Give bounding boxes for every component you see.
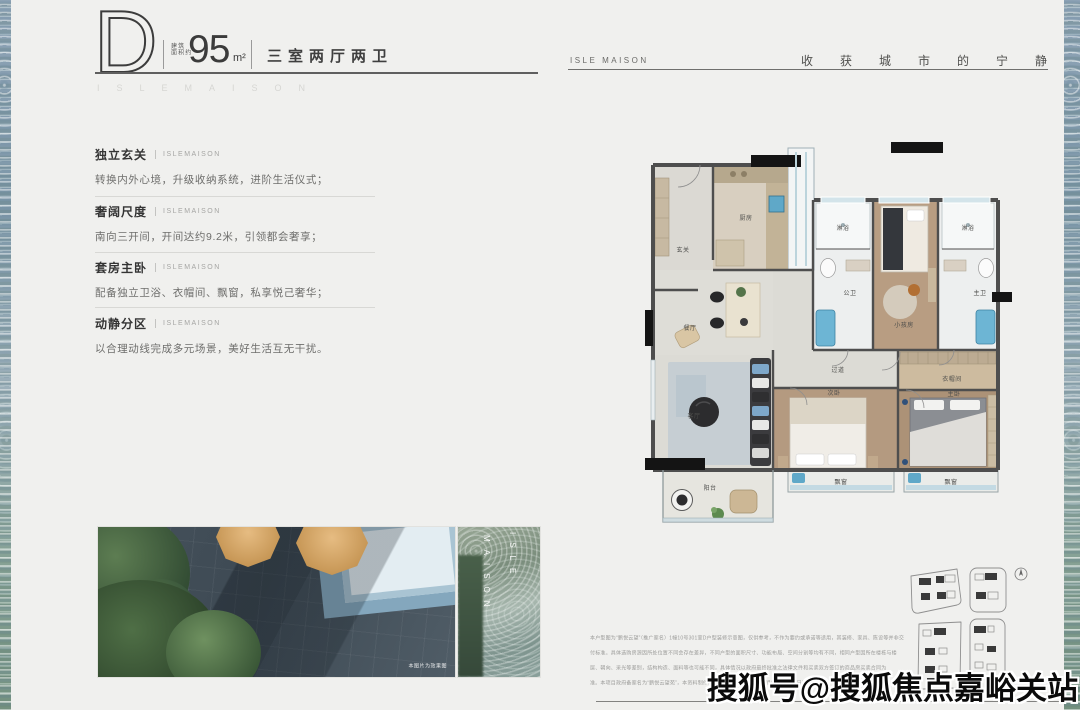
left-texture-strip (0, 0, 11, 710)
feature-title: 奢阔尺度 (95, 203, 147, 220)
floorplan-poster-page: D 建筑 面积约 95 m² 三室两厅两卫 ISLEMAISON 独立玄关 IS… (0, 0, 1080, 710)
feature-divider (95, 196, 375, 197)
room-label: 淋浴 (961, 224, 974, 232)
watermark-text: 搜狐号@搜狐焦点嘉峪关站 (707, 663, 1078, 708)
room-label: 阳台 (703, 484, 716, 492)
feature-desc: 转换内外心境，升级收纳系统，进阶生活仪式； (95, 172, 395, 187)
feature-title: 动静分区 (95, 315, 147, 332)
header-rule (95, 72, 538, 74)
room-label: 主卧 (947, 390, 960, 398)
compass-icon (1015, 568, 1027, 580)
layout-label: 三室两厅两卫 (267, 45, 393, 66)
room-label: 次卧 (827, 389, 840, 397)
room-label: 公卫 (843, 290, 856, 297)
feature-master-suite: 套房主卧 ISLEMAISON 配备独立卫浴、衣帽间、飘窗，私享悦己奢华； (95, 259, 395, 300)
feature-desc: 以合理动线完成多元场景，美好生活互无干扰。 (95, 341, 395, 356)
unit-letter-d: D (92, 2, 164, 82)
room-label: 主卫 (973, 289, 986, 297)
room-label: 过道 (831, 366, 844, 374)
feature-brand: ISLEMAISON (155, 319, 221, 328)
room-label: 小孩房 (894, 321, 914, 329)
feature-brand: ISLEMAISON (155, 150, 221, 159)
courtyard-photo: 本图片为效果图 (98, 527, 455, 677)
disclaimer-line: 付标准。具体选购房源因所处位置不同会存在差异，不同户型的面积尺寸、功能布局、空间… (590, 646, 915, 661)
feature-zoning: 动静分区 ISLEMAISON 以合理动线完成多元场景，美好生活互无干扰。 (95, 315, 395, 356)
room-label: 衣帽间 (942, 375, 962, 383)
feature-title: 套房主卧 (95, 259, 147, 276)
glass-texture-photo: MAISON ISLE (458, 527, 540, 677)
feature-brand: ISLEMAISON (155, 207, 221, 216)
ghost-brand-text: ISLEMAISON (97, 83, 322, 93)
room-label: 飘窗 (834, 478, 847, 486)
right-texture-strip (1064, 0, 1080, 710)
vertical-brand-isle: ISLE (508, 532, 517, 581)
disclaimer-line: 本户型图为“鹏悦云望”（推广案名）1幢10号301室D户型装修示意图，仅供参考，… (590, 631, 915, 646)
header-divider-1 (163, 40, 164, 69)
room-label: 飘窗 (944, 478, 957, 486)
feature-divider (95, 307, 375, 308)
header-divider-2 (251, 40, 252, 69)
feature-entry: 独立玄关 ISLEMAISON 转换内外心境，升级收纳系统，进阶生活仪式； (95, 146, 395, 187)
unit-letter-text: D (94, 2, 158, 82)
feature-brand: ISLEMAISON (155, 263, 221, 272)
room-label: 玄关 (676, 246, 689, 254)
area-unit: m² (233, 52, 246, 64)
room-label: 客厅 (687, 412, 700, 420)
photo-caption: 本图片为效果图 (409, 662, 448, 670)
feature-title: 独立玄关 (95, 146, 147, 163)
right-header-rule (568, 69, 1048, 70)
room-label: 餐厅 (683, 324, 696, 332)
glass-door-shadow (458, 555, 483, 677)
feature-desc: 南向三开间，开间达约9.2米，引领都会奢享； (95, 229, 395, 244)
feature-scale: 奢阔尺度 ISLEMAISON 南向三开间，开间达约9.2米，引领都会奢享； (95, 203, 395, 244)
vertical-brand-maison: MAISON (482, 535, 491, 615)
feature-divider (95, 252, 375, 253)
slogan: 收获城市的宁静 (801, 52, 1074, 69)
room-label: 淋浴 (836, 224, 849, 232)
floor-plan: 玄关 厨房 餐厅 客厅 阳台 淋浴 公卫 小孩房 淋浴 主卫 过道 衣帽间 次卧… (638, 140, 1016, 530)
brand-name: ISLE MAISON (570, 56, 649, 65)
area-value: 95 (188, 28, 229, 72)
feature-desc: 配备独立卫浴、衣帽间、飘窗，私享悦己奢华； (95, 285, 395, 300)
room-label: 厨房 (739, 214, 752, 222)
